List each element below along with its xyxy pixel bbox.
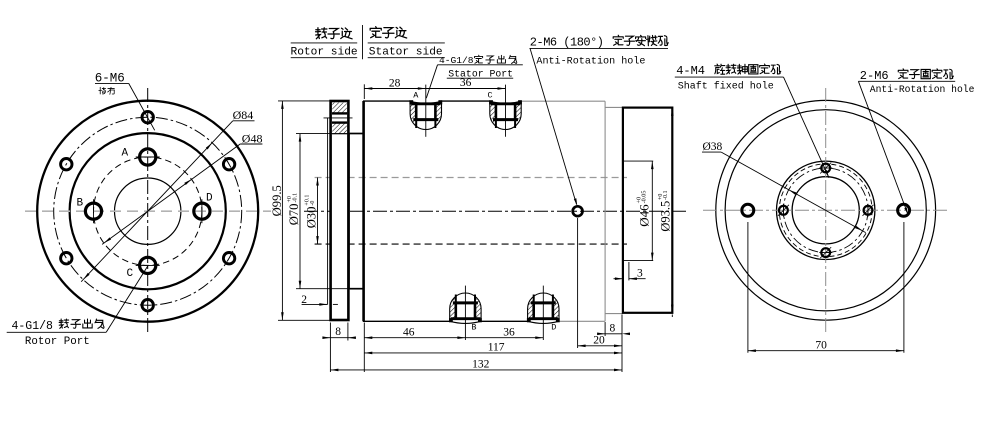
svg-text:C: C xyxy=(488,90,493,100)
svg-text:28: 28 xyxy=(389,78,401,90)
svg-text:20: 20 xyxy=(593,334,605,346)
svg-text:Anti-Rotation hole: Anti-Rotation hole xyxy=(870,84,975,95)
svg-text:2-M6 (180°): 2-M6 (180°) xyxy=(530,36,604,50)
svg-text:Ø46: Ø46 xyxy=(636,204,651,227)
svg-text:-0.05: -0.05 xyxy=(641,191,648,204)
svg-text:D: D xyxy=(206,193,213,205)
svg-text:Rotor Port: Rotor Port xyxy=(25,336,90,348)
svg-text:4-G1/8: 4-G1/8 xyxy=(12,320,54,333)
svg-text:Ø93.5: Ø93.5 xyxy=(659,201,673,232)
svg-text:A: A xyxy=(122,148,129,160)
svg-text:Ø84: Ø84 xyxy=(233,108,254,122)
svg-text:D: D xyxy=(551,323,556,333)
svg-text:-0.1: -0.1 xyxy=(292,193,298,203)
svg-text:Shaft fixed hole: Shaft fixed hole xyxy=(678,80,774,92)
svg-text:Ø48: Ø48 xyxy=(242,131,263,145)
svg-text:Ø70: Ø70 xyxy=(287,204,301,226)
svg-text:3: 3 xyxy=(637,268,643,280)
svg-text:-0: -0 xyxy=(310,201,316,206)
svg-text:B: B xyxy=(77,198,84,210)
svg-text:36: 36 xyxy=(460,77,472,89)
svg-text:Rotor side: Rotor side xyxy=(291,46,358,58)
svg-text:36: 36 xyxy=(503,326,515,338)
svg-text:8: 8 xyxy=(610,322,616,334)
svg-text:132: 132 xyxy=(472,359,490,371)
svg-text:46: 46 xyxy=(403,326,415,338)
svg-text:C: C xyxy=(127,268,134,280)
svg-text:117: 117 xyxy=(488,342,505,354)
svg-text:Ø99.5: Ø99.5 xyxy=(270,185,284,216)
svg-text:Ø30: Ø30 xyxy=(304,207,318,229)
svg-text:A: A xyxy=(413,90,419,100)
svg-text:Anti-Rotation hole: Anti-Rotation hole xyxy=(536,56,645,68)
svg-text:Ø38: Ø38 xyxy=(703,141,723,153)
svg-text:Stator side: Stator side xyxy=(369,46,443,58)
svg-text:70: 70 xyxy=(815,339,827,351)
svg-text:8: 8 xyxy=(335,326,341,338)
svg-text:-0.1: -0.1 xyxy=(663,191,669,201)
svg-text:4-G1/8: 4-G1/8 xyxy=(439,55,474,66)
svg-text:4-M4: 4-M4 xyxy=(676,64,705,78)
svg-text:2-M6: 2-M6 xyxy=(860,69,889,83)
svg-text:B: B xyxy=(471,323,476,333)
